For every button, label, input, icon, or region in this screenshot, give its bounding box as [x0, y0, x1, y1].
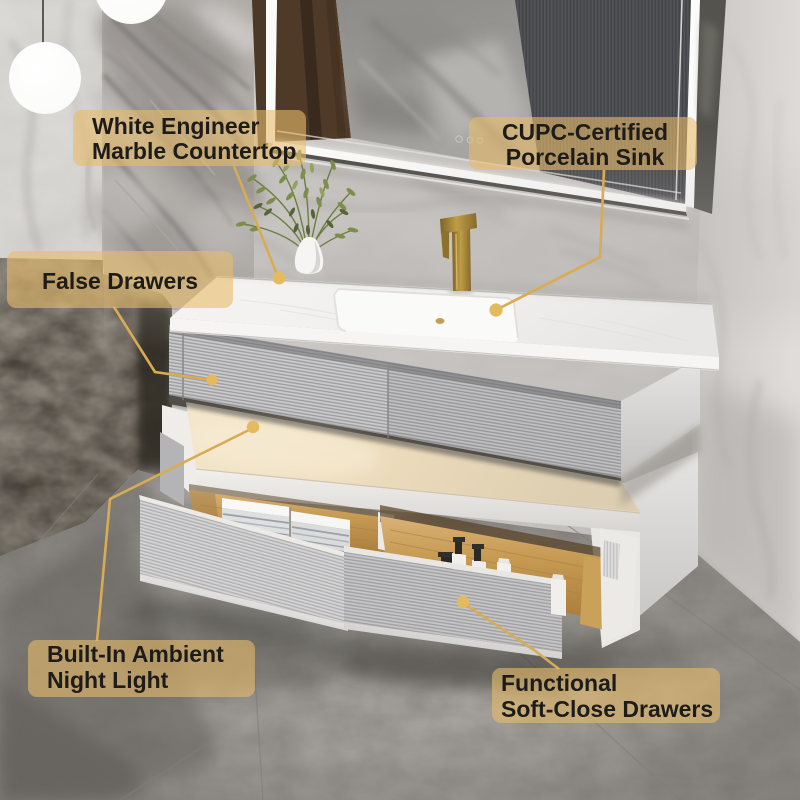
svg-text:False Drawers: False Drawers — [42, 268, 198, 294]
svg-text:Built-In Ambient: Built-In Ambient — [47, 641, 224, 667]
svg-text:CUPC-Certified: CUPC-Certified — [502, 119, 668, 145]
svg-text:Soft-Close Drawers: Soft-Close Drawers — [501, 696, 713, 722]
svg-text:Porcelain Sink: Porcelain Sink — [506, 144, 665, 170]
svg-text:Night Light: Night Light — [47, 667, 169, 693]
svg-text:Functional: Functional — [501, 670, 617, 696]
svg-text:Marble Countertop: Marble Countertop — [92, 138, 296, 164]
svg-text:White Engineer: White Engineer — [92, 113, 259, 139]
